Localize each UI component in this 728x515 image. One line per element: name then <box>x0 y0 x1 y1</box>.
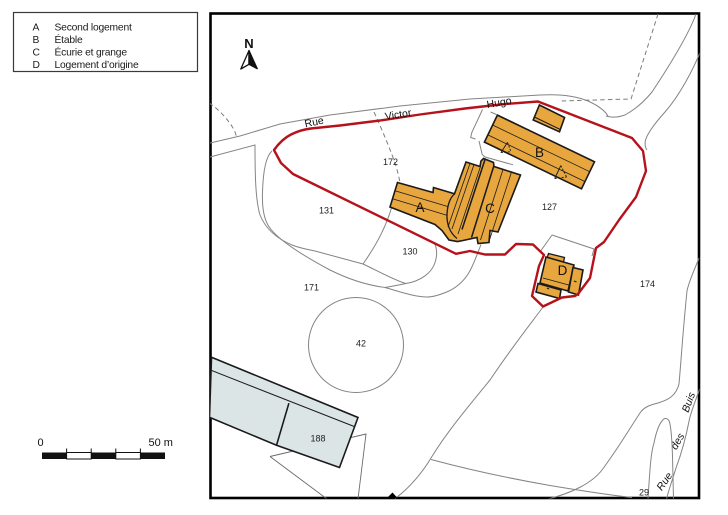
svg-text:130: 130 <box>402 247 417 257</box>
svg-text:127: 127 <box>542 202 557 212</box>
svg-text:50 m: 50 m <box>149 437 173 449</box>
svg-text:172: 172 <box>383 157 398 167</box>
svg-text:Écurie et grange: Écurie et grange <box>55 46 128 59</box>
svg-text:131: 131 <box>319 206 334 216</box>
svg-text:29: 29 <box>639 488 649 498</box>
svg-text:42: 42 <box>356 339 366 349</box>
svg-text:N: N <box>244 36 253 51</box>
svg-text:188: 188 <box>310 434 325 444</box>
svg-text:Étable: Étable <box>55 33 83 46</box>
svg-text:A: A <box>33 23 40 34</box>
svg-text:A: A <box>415 200 424 215</box>
svg-text:C: C <box>485 201 495 216</box>
svg-text:B: B <box>33 35 40 46</box>
svg-text:B: B <box>535 145 544 160</box>
svg-text:Second logement: Second logement <box>55 23 132 34</box>
svg-text:Logement d’origine: Logement d’origine <box>55 60 139 71</box>
svg-text:D: D <box>558 263 568 278</box>
svg-text:174: 174 <box>640 279 655 289</box>
svg-text:C: C <box>33 48 41 59</box>
svg-text:0: 0 <box>38 437 44 449</box>
svg-text:171: 171 <box>304 283 319 293</box>
svg-text:D: D <box>33 60 40 71</box>
